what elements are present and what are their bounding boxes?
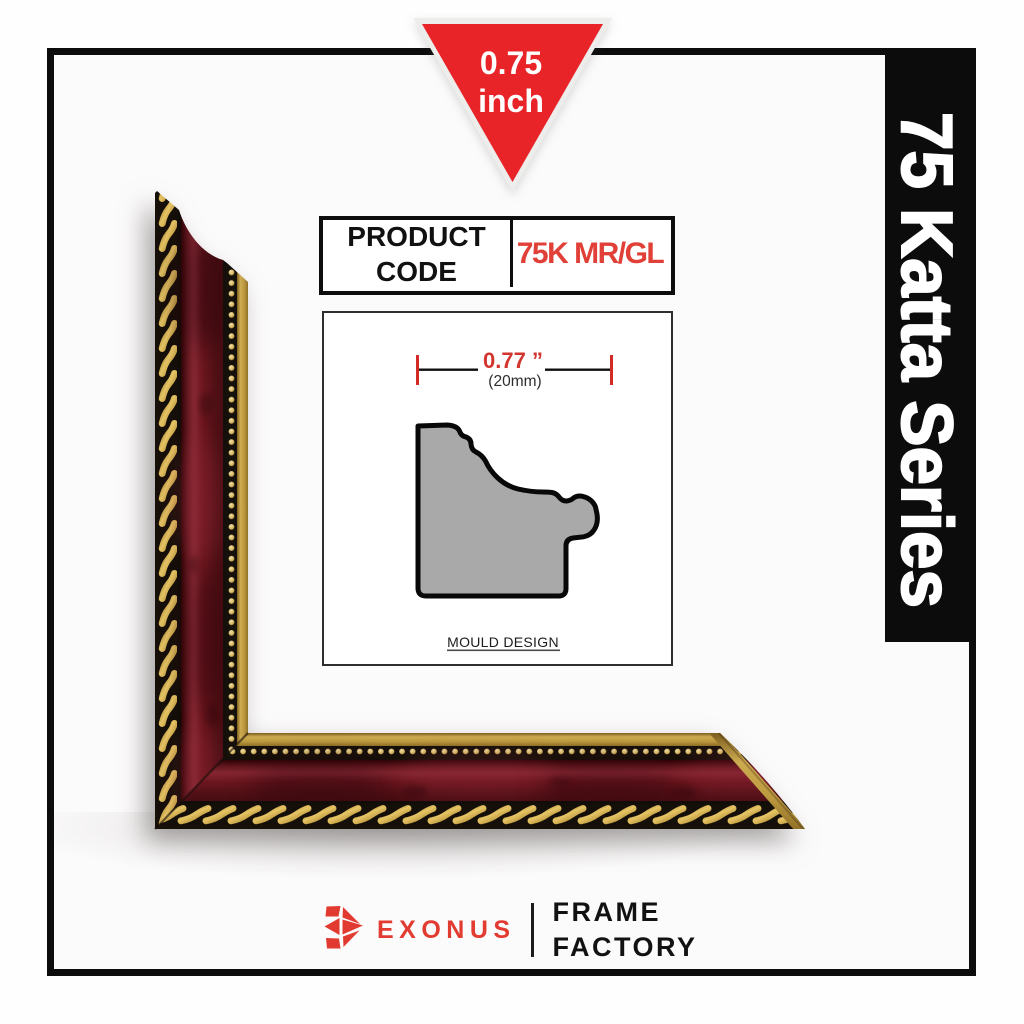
svg-text:inch: inch — [478, 83, 544, 119]
svg-text:0.75: 0.75 — [480, 45, 542, 81]
svg-text:75 Katta Series: 75 Katta Series — [886, 112, 966, 608]
